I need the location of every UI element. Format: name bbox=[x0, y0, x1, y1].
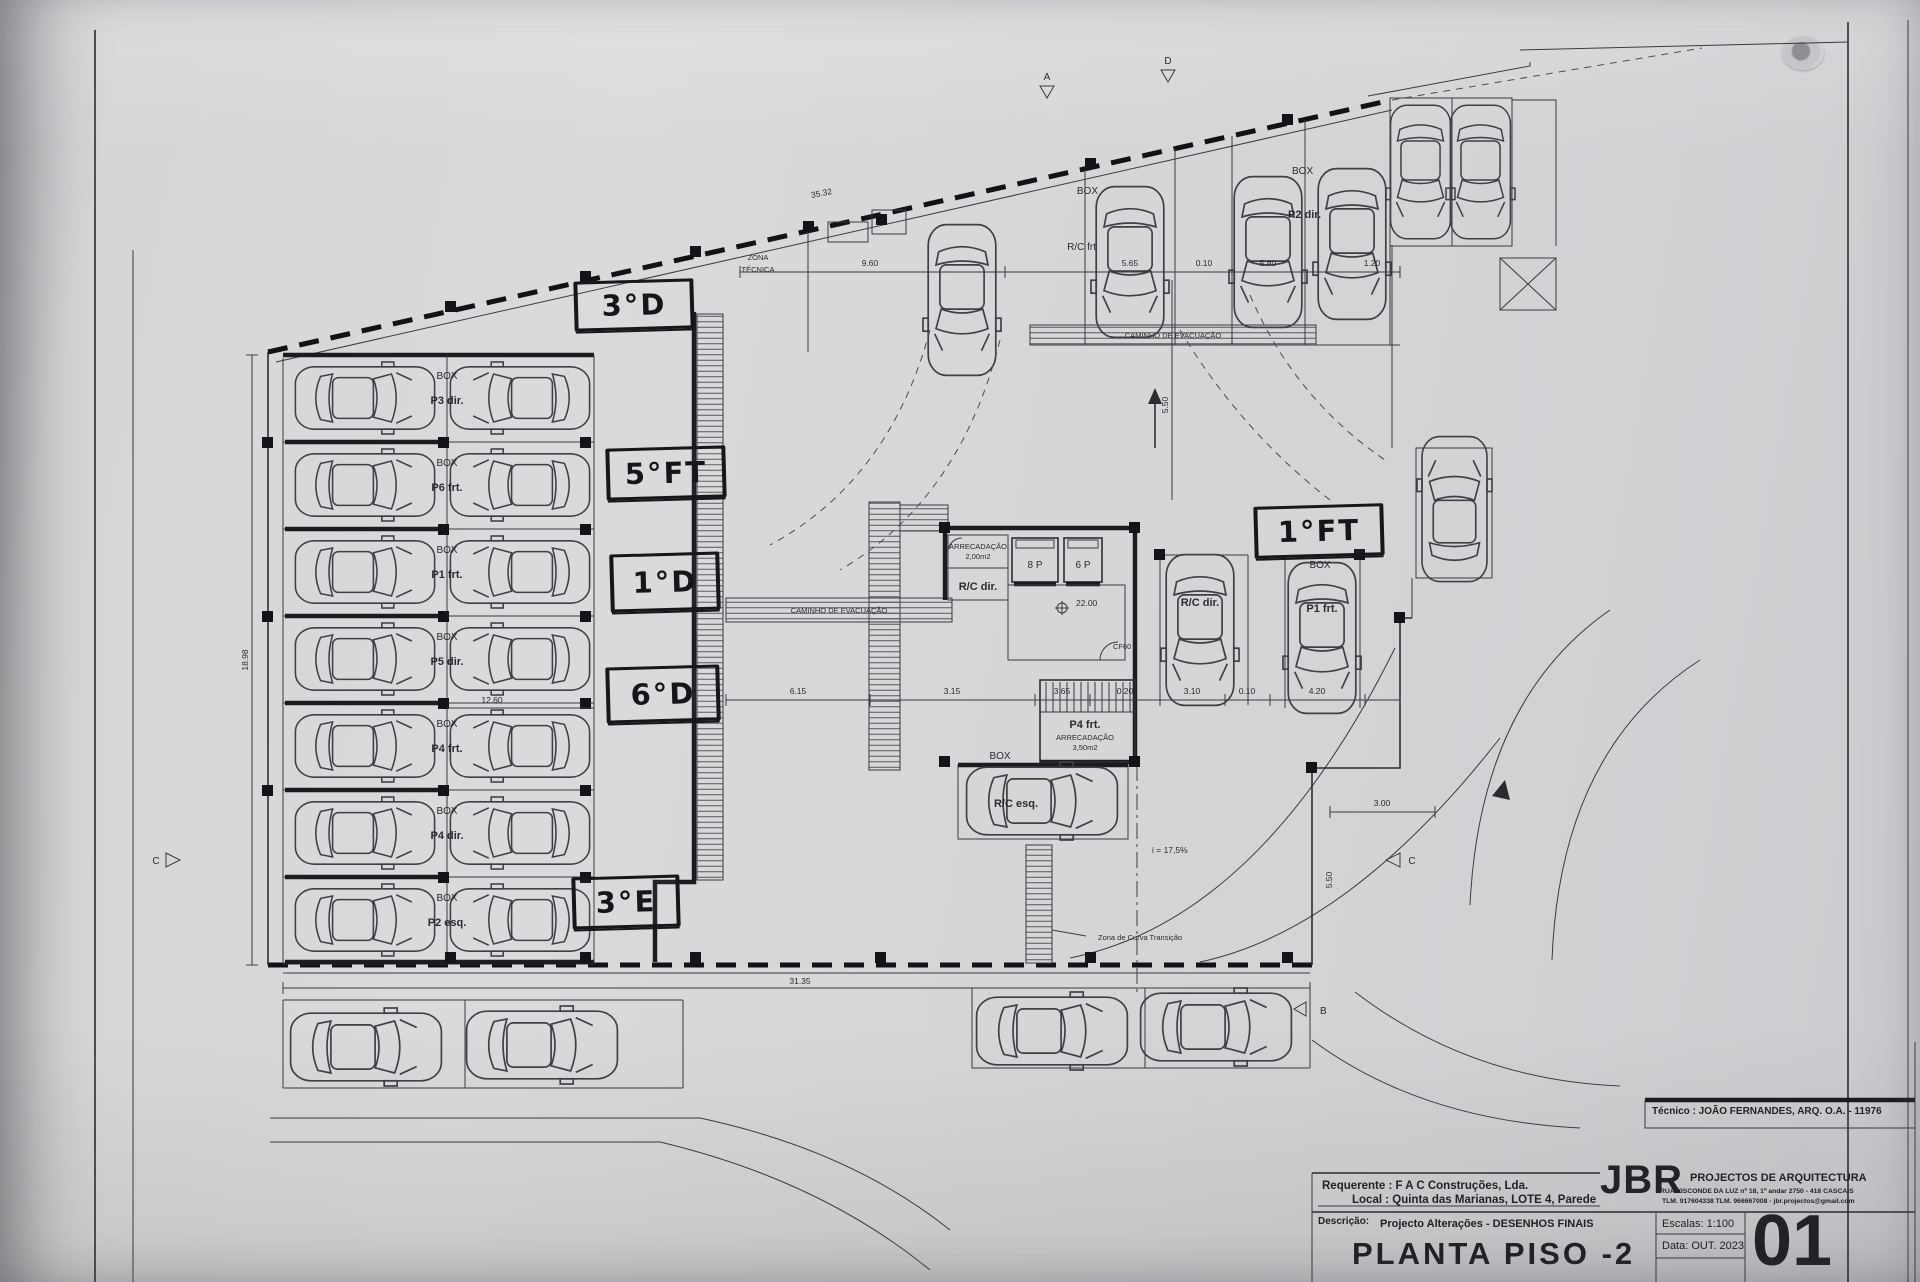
dim-5-50b: 5.50 bbox=[1324, 871, 1334, 888]
row2-spot-label: P6 frt. bbox=[431, 482, 462, 494]
curva-transicao-label: Zona de Curva Transição bbox=[1098, 933, 1182, 942]
sheet-frame bbox=[95, 20, 1908, 1282]
arrecadacao1-area: 2,00m2 bbox=[965, 552, 990, 561]
row4-spot-label: P5 dir. bbox=[430, 656, 463, 668]
escala-line: Escalas: 1:100 bbox=[1662, 1218, 1734, 1230]
requerente-line: Requerente : F A C Construções, Lda. bbox=[1322, 1180, 1528, 1192]
central-parking: R/C dir. BOX P1 frt. bbox=[1160, 437, 1492, 714]
dim-0-20: 0.20 bbox=[1117, 686, 1134, 696]
dimension-lines: 18.98 12.60 31.35 6.15 3.15 3.65 0.20 3.… bbox=[240, 355, 1435, 994]
row2-box-label: BOX bbox=[436, 458, 457, 469]
row1-box-label: BOX bbox=[436, 371, 457, 382]
row7-spot-label: P2 esq. bbox=[428, 917, 467, 929]
local-line: Local : Quinta das Marianas, LOTE 4, Par… bbox=[1352, 1194, 1596, 1206]
handwritten-unit-1d: 1°D bbox=[609, 551, 721, 612]
dim-3-15: 3.15 bbox=[944, 686, 961, 696]
row3-box-label: BOX bbox=[436, 545, 457, 556]
row6-box-label: BOX bbox=[436, 806, 457, 817]
lift-left-label: 8 P bbox=[1027, 560, 1042, 571]
section-markers: A D C C B bbox=[152, 56, 1415, 1017]
descricao-line: Projecto Alterações - DESENHOS FINAIS bbox=[1380, 1218, 1594, 1230]
caminho-evacuacao-label-2: CAMINHO DE EVACUAÇÃO bbox=[1125, 331, 1222, 340]
handwritten-unit-3e: 3°E bbox=[571, 875, 680, 930]
arrecadacao2-area: 3,50m2 bbox=[1072, 743, 1097, 752]
lift-right-label: 6 P bbox=[1075, 560, 1090, 571]
dim-31-35: 31.35 bbox=[789, 976, 811, 986]
dim-3-10: 3.10 bbox=[1184, 686, 1201, 696]
sheet-title: PLANTA PISO -2 bbox=[1352, 1236, 1635, 1272]
firm-initials: JBR bbox=[1600, 1158, 1683, 1203]
dim-12-60: 12.60 bbox=[481, 695, 503, 705]
dim-5-65: 5.65 bbox=[1122, 258, 1139, 268]
rc-dir-room-label: R/C dir. bbox=[959, 581, 998, 593]
scanned-floor-plan-photo: BOX P3 dir. BOX P6 frt. BOX P1 frt. BOX … bbox=[0, 0, 1920, 1282]
central-core: ARRECADAÇÃO 2,00m2 R/C dir. 8 P 6 P 22.0… bbox=[945, 388, 1162, 762]
level-22-00: 22.00 bbox=[1076, 598, 1098, 608]
row4-box-label: BOX bbox=[436, 632, 457, 643]
dim-4-20: 4.20 bbox=[1309, 686, 1326, 696]
handwritten-unit-5ft: 5°FT bbox=[605, 445, 726, 500]
p2-dir-label: P2 dir. bbox=[1288, 209, 1321, 221]
bottom-stalls bbox=[270, 988, 1310, 1270]
descricao-label: Descrição: bbox=[1318, 1216, 1369, 1227]
ramp-and-walkways: CAMINHO DE EVACUAÇÃO CAMINHO DE EVACUAÇÃ… bbox=[655, 312, 1316, 963]
dim-6-15: 6.15 bbox=[790, 686, 807, 696]
firm-address: RUA VISCONDE DA LUZ nº 18, 1º andar 2750… bbox=[1660, 1188, 1854, 1195]
rc-esq-stall: BOX R/C esq. Zona de Curva Transição i =… bbox=[958, 751, 1188, 942]
esq-box-label: BOX bbox=[989, 751, 1010, 762]
dim-9-60: 9.60 bbox=[862, 258, 879, 268]
row5-spot-label: P4 frt. bbox=[431, 743, 462, 755]
marker-d: D bbox=[1164, 56, 1171, 67]
sheet-number: 01 bbox=[1752, 1200, 1832, 1282]
data-line: Data: OUT. 2023 bbox=[1662, 1240, 1744, 1252]
marker-c-left: C bbox=[152, 856, 159, 867]
mid-box-label: BOX bbox=[1309, 560, 1330, 571]
dim-0-10a: 0.10 bbox=[1196, 258, 1213, 268]
handwritten-unit-3d: 3°D bbox=[573, 278, 694, 331]
handwritten-unit-1ft: 1°FT bbox=[1253, 503, 1384, 559]
marker-b: B bbox=[1320, 1006, 1327, 1017]
tecnico-line: Técnico : JOÃO FERNANDES, ARQ. O.A. - 11… bbox=[1652, 1106, 1882, 1117]
row5-box-label: BOX bbox=[436, 719, 457, 730]
top-box-left-label: BOX bbox=[1077, 186, 1098, 197]
ramp-slope-label: i = 17,5% bbox=[1152, 845, 1188, 855]
zona-tecnica: ZONA TÉCNICA bbox=[742, 210, 906, 352]
arrecadacao1-label: ARRECADAÇÃO bbox=[949, 542, 1007, 551]
handwritten-unit-6d: 6°D bbox=[605, 664, 721, 723]
left-parking-block: BOX P3 dir. BOX P6 frt. BOX P1 frt. BOX … bbox=[283, 355, 594, 964]
zona-tecnica-label-2: TÉCNICA bbox=[742, 265, 775, 274]
dim-35-32: 35.32 bbox=[810, 186, 833, 200]
dim-0-10b: 0.10 bbox=[1239, 686, 1256, 696]
row6-spot-label: P4 dir. bbox=[430, 830, 463, 842]
door-cf60-label: CF60 bbox=[1113, 642, 1131, 651]
dim-18-98: 18.98 bbox=[240, 649, 250, 671]
dim-5-50a: 5.50 bbox=[1160, 396, 1170, 413]
dim-3-65: 3.65 bbox=[1054, 686, 1071, 696]
rc-dir-stall-label: R/C dir. bbox=[1181, 597, 1220, 609]
dim-3-00: 3.00 bbox=[1374, 798, 1391, 808]
rc-esq-label: R/C esq. bbox=[994, 798, 1038, 810]
caminho-evacuacao-label-1: CAMINHO DE EVACUAÇÃO bbox=[791, 606, 888, 615]
dim-5-80: 5.80 bbox=[1260, 258, 1277, 268]
floor-plan-drawing: BOX P3 dir. BOX P6 frt. BOX P1 frt. BOX … bbox=[0, 0, 1920, 1282]
row1-spot-label: P3 dir. bbox=[430, 395, 463, 407]
dim-1-20: 1.20 bbox=[1364, 258, 1381, 268]
row3-spot-label: P1 frt. bbox=[431, 569, 462, 581]
top-box-right-label: BOX bbox=[1292, 166, 1313, 177]
top-parking-stalls: BOX R/C frt BOX P2 dir. 9.60 5.65 0.10 5… bbox=[740, 102, 1400, 500]
zona-tecnica-label-1: ZONA bbox=[748, 253, 769, 262]
marker-a: A bbox=[1044, 72, 1051, 83]
marker-c-right: C bbox=[1408, 856, 1415, 867]
arrecadacao2-label: ARRECADAÇÃO bbox=[1056, 733, 1114, 742]
p4-frt-label: P4 frt. bbox=[1069, 719, 1100, 731]
firm-name: PROJECTOS DE ARQUITECTURA bbox=[1690, 1172, 1867, 1184]
p1-frt-label: P1 frt. bbox=[1306, 603, 1337, 615]
rc-frt-label: R/C frt bbox=[1067, 242, 1096, 253]
row7-box-label: BOX bbox=[436, 893, 457, 904]
